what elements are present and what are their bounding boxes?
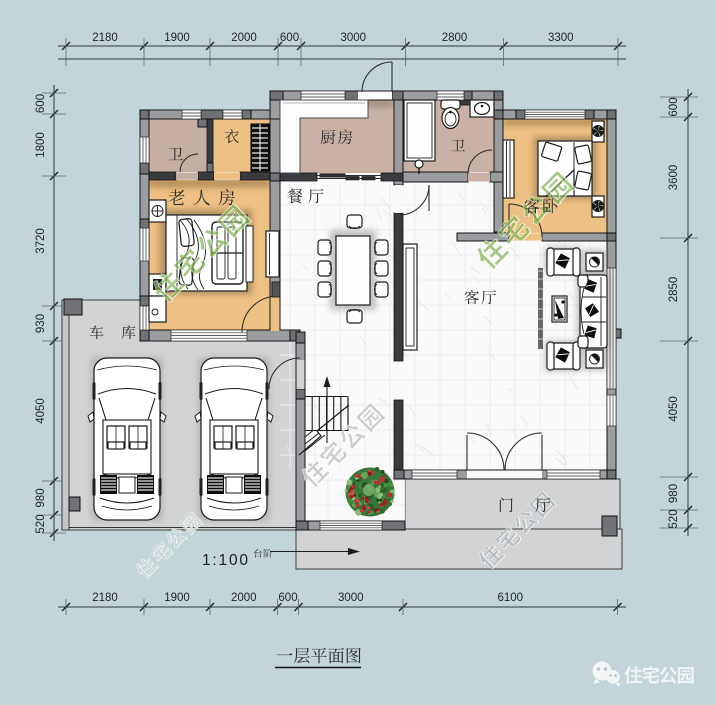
svg-text:2850: 2850 [668,277,680,303]
svg-text:1:100: 1:100 [202,552,250,569]
svg-text:1900: 1900 [164,32,190,44]
svg-text:520: 520 [35,514,47,533]
svg-text:600: 600 [278,592,297,604]
svg-text:2800: 2800 [442,32,468,44]
svg-text:600: 600 [280,32,299,44]
svg-text:1900: 1900 [164,592,190,604]
svg-text:3000: 3000 [338,592,364,604]
svg-text:600: 600 [668,97,680,116]
svg-text:4050: 4050 [668,396,680,422]
svg-text:980: 980 [35,488,47,507]
svg-text:1800: 1800 [35,132,47,158]
svg-text:3300: 3300 [548,32,574,44]
svg-text:600: 600 [35,94,47,113]
svg-text:3000: 3000 [340,32,366,44]
svg-text:3600: 3600 [668,165,680,191]
svg-text:2180: 2180 [92,592,118,604]
svg-text:930: 930 [35,314,47,333]
svg-text:520: 520 [668,509,680,528]
svg-text:2000: 2000 [231,32,257,44]
svg-text:4050: 4050 [35,398,47,424]
svg-text:3720: 3720 [35,228,47,254]
svg-text:980: 980 [668,484,680,503]
svg-text:2000: 2000 [231,592,257,604]
svg-text:2180: 2180 [92,32,118,44]
svg-text:6100: 6100 [497,592,523,604]
